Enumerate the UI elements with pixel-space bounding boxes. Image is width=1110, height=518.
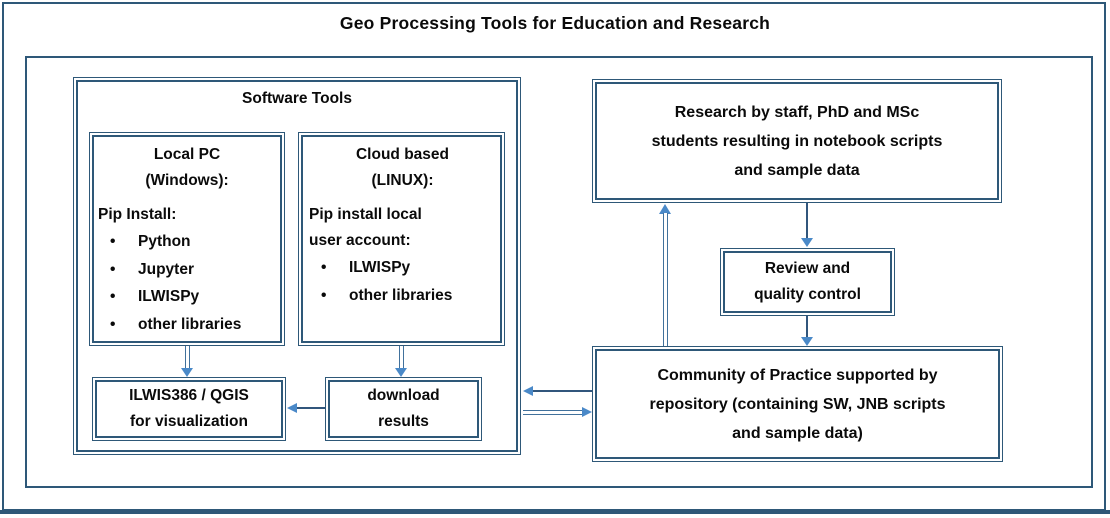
research-line3: and sample data (734, 156, 859, 185)
arrow-community-to-research-shaft (663, 213, 668, 346)
local-pc-box: Local PC (Windows): Pip Install: Python … (89, 132, 285, 346)
arrow-localpc-to-visualization-head (181, 368, 193, 377)
arrow-research-to-review-head (801, 238, 813, 247)
research-line1: Research by staff, PhD and MSc (675, 98, 920, 127)
cloud-item: other libraries (309, 282, 496, 310)
review-line2: quality control (754, 282, 861, 308)
community-line2: repository (containing SW, JNB scripts (649, 390, 945, 419)
arrow-review-to-community-head (801, 337, 813, 346)
cloud-based-box: Cloud based (LINUX): Pip install local u… (298, 132, 505, 346)
arrow-download-to-visualization-head (287, 403, 297, 413)
visualization-line2: for visualization (130, 409, 248, 435)
page-title: Geo Processing Tools for Education and R… (0, 13, 1110, 34)
local-pc-subheading: Pip Install: (98, 202, 276, 228)
arrow-community-to-software-head (523, 386, 533, 396)
research-line2: students resulting in notebook scripts (652, 127, 943, 156)
local-pc-title-line1: Local PC (98, 142, 276, 168)
local-pc-item: Jupyter (98, 256, 276, 284)
arrow-review-to-community-shaft (806, 316, 809, 338)
visualization-line1: ILWIS386 / QGIS (129, 383, 249, 409)
download-line1: download (367, 383, 439, 409)
arrow-localpc-to-visualization-shaft (185, 346, 190, 369)
arrow-cloud-to-download-head (395, 368, 407, 377)
bottom-accent-bar (0, 510, 1110, 514)
community-line1: Community of Practice supported by (657, 361, 937, 390)
local-pc-item: other libraries (98, 311, 276, 339)
cloud-item: ILWISPy (309, 254, 496, 282)
arrow-download-to-visualization-shaft (296, 407, 325, 410)
arrow-community-to-software-shaft (533, 390, 592, 393)
download-line2: results (378, 409, 429, 435)
research-box: Research by staff, PhD and MSc students … (592, 79, 1002, 203)
cloud-subheading-line2: user account: (309, 228, 496, 254)
download-results-box: download results (325, 377, 482, 441)
software-tools-heading: Software Tools (74, 90, 520, 108)
community-line3: and sample data) (732, 419, 863, 448)
arrow-software-to-community-head (582, 407, 592, 417)
diagram-canvas: Geo Processing Tools for Education and R… (0, 0, 1110, 518)
review-box: Review and quality control (720, 248, 895, 316)
cloud-subheading-line1: Pip install local (309, 202, 496, 228)
local-pc-title-line2: (Windows): (98, 168, 276, 194)
local-pc-item: Python (98, 228, 276, 256)
cloud-title-line2: (LINUX): (309, 168, 496, 194)
visualization-box: ILWIS386 / QGIS for visualization (92, 377, 286, 441)
arrow-software-to-community-shaft (523, 410, 582, 415)
cloud-title-line1: Cloud based (309, 142, 496, 168)
local-pc-item: ILWISPy (98, 283, 276, 311)
arrow-cloud-to-download-shaft (399, 346, 404, 369)
review-line1: Review and (765, 256, 850, 282)
community-box: Community of Practice supported by repos… (592, 346, 1003, 462)
arrow-research-to-review-shaft (806, 203, 809, 239)
